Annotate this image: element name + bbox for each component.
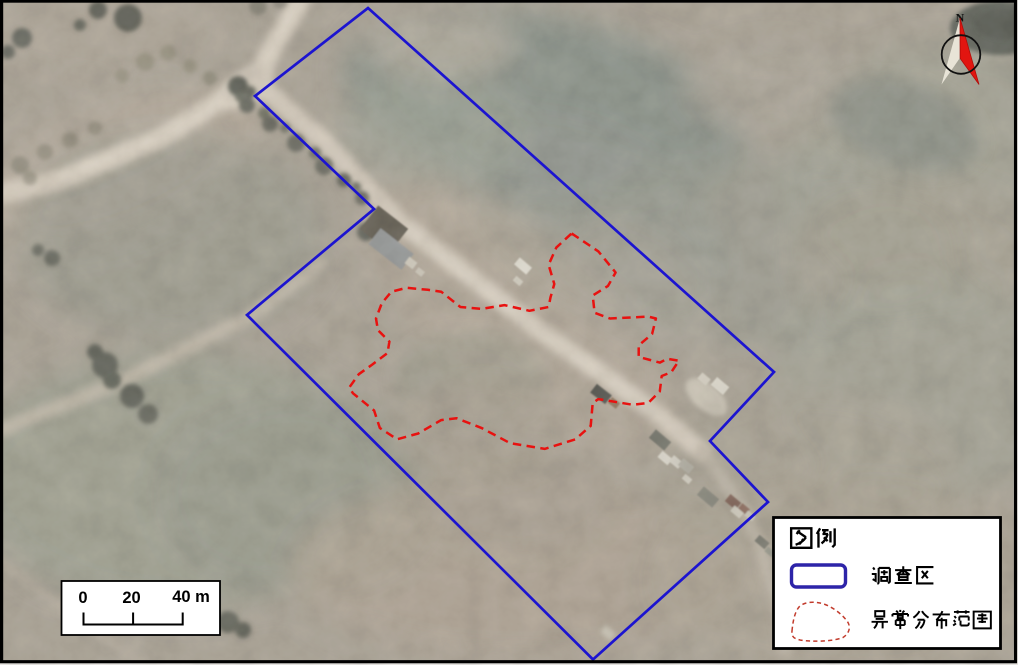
svg-text:40 m: 40 m <box>172 588 210 606</box>
svg-text:0: 0 <box>78 589 87 607</box>
svg-text:20: 20 <box>122 589 140 607</box>
